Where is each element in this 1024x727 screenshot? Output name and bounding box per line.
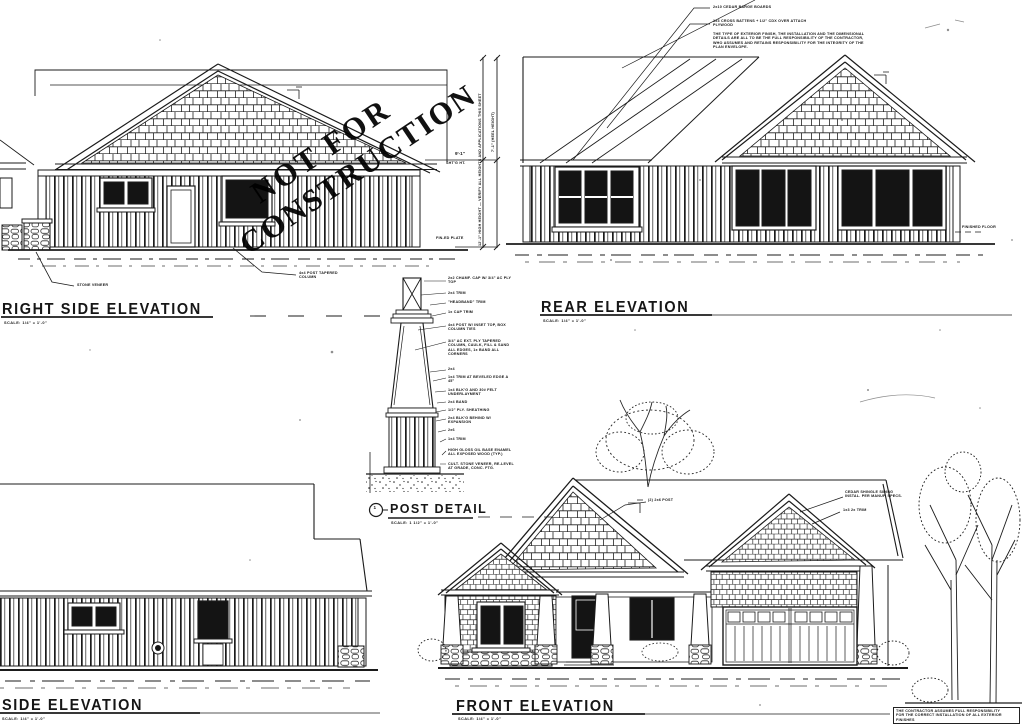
note-finish-disclaimer: THE TYPE OF EXTERIOR FINISH, THE INSTALL… [713, 32, 865, 50]
label-stone-veneer: STONE VENEER [77, 283, 127, 287]
right-side-elevation-title: RIGHT SIDE ELEVATION [2, 302, 202, 319]
contractor-note-line-2: FOR THE CORRECT INSTALLATION OF ALL EXTE… [896, 713, 1017, 722]
side-elevation-title: SIDE ELEVATION [2, 698, 143, 715]
post-callout: HIGH GLOSS OIL BASE ENAMEL ALL EXPOSED W… [448, 448, 514, 457]
post-callout: 1x4 TRIM [448, 437, 514, 441]
dim-wall-height-note: 12'-1" HIGH HEIGHT — VERIFY ALL HEIGHTS … [478, 62, 482, 246]
post-detail-title: POST DETAIL [390, 502, 487, 516]
label-trim: 1x3 2x TRIM [843, 508, 893, 512]
dim-plate-height: 9'-1" [455, 151, 465, 156]
note-barge-boards: 2x10 CEDAR BARGE BOARDS [713, 5, 833, 9]
post-callout: 1x4 TRIM AT BEVELED EDGE A 45° [448, 375, 514, 384]
label-shingle-siding: CEDAR SHINGLE SIDING INSTAL. PER MANUF. … [845, 490, 907, 499]
post-callout: 2x4 BAND [448, 400, 514, 404]
post-callout: 1/2" PLY. SHEATHING [448, 408, 514, 412]
post-callout: 1x4 BLK'G AND 30# FELT UNDERLAYMENT [448, 388, 514, 397]
right-trees [905, 452, 1022, 703]
dim-finished-plate: FIN-ED PLATE [436, 236, 478, 240]
post-callout: 3/4" AC EXT. PLY TAPERED COLUMN, CAULK, … [448, 339, 514, 357]
post-callout: 2x4 [448, 367, 514, 371]
post-callout: 2x4 TRIM [448, 291, 514, 295]
elevation-line-art [0, 0, 1024, 727]
side-elevation-scale: SCALE: 1/4" = 1'-0" [2, 716, 45, 721]
right-side-elevation-scale: SCALE: 1/4" = 1'-0" [4, 320, 47, 325]
front-elevation-title: FRONT ELEVATION [456, 699, 615, 716]
contractor-responsibility-box: THE CONTRACTOR ASSUMES FULL RESPONSIBILI… [893, 707, 1020, 724]
post-callout: 4x4 POST W/ INSET TOP, BOX COLUMN TIES [448, 323, 514, 332]
post-callout: 2x6 [448, 428, 514, 432]
post-callout: 1x CAP TRIM [448, 310, 514, 314]
dim-heel-height: 7'-1" (HEEL HEIGHT) [491, 66, 495, 152]
dim-sheathing-height: SHT'G HT. [446, 161, 480, 165]
post-callout: 2x4 BLK'G BEHIND W/ EXPANSION [448, 416, 514, 425]
dim-finished-floor: FINISHED FLOOR [962, 225, 1008, 229]
label-post-taper: 4x4 POST TAPERED COLUMN [299, 271, 341, 280]
label-front-post: (2) 2x6 POST [648, 498, 692, 502]
post-callout: 2x2 CHAMF. CAP W/ 3/4" AC PLY TOP [448, 276, 514, 285]
rear-elevation-scale: SCALE: 1/4" = 1'-0" [543, 318, 586, 323]
post-detail-marker: 1 [374, 505, 377, 510]
side-elevation-drawing [0, 484, 380, 713]
post-callout: "HEADBAND" TRIM [448, 300, 514, 304]
note-cross-battens: 1x3 CROSS BATTENS + 1/2" CDX OVER ATTACH… [713, 19, 818, 28]
front-elevation-scale: SCALE: 1/4" = 1'-0" [458, 716, 501, 721]
post-detail-scale: SCALE: 1 1/2" = 1'-0" [391, 520, 438, 525]
rear-elevation-title: REAR ELEVATION [541, 300, 689, 317]
post-callout: CULT. STONE VENEER, RE-LEVEL AT GRADE, C… [448, 462, 514, 471]
blueprint-sheet: RIGHT SIDE ELEVATION SCALE: 1/4" = 1'-0"… [0, 0, 1024, 727]
